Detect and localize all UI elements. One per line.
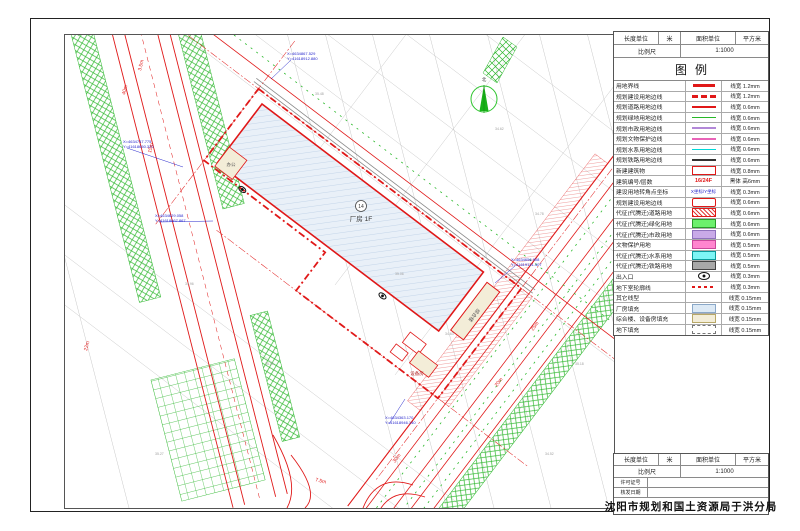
coordinate-y-text: Y=41618667.867 <box>155 218 186 223</box>
legend-row-linewidth: 线宽 0.15mm <box>722 325 768 336</box>
legend-swatch-line-black <box>686 155 722 165</box>
legend-swatch-rect-red-outline <box>686 166 722 176</box>
legend-row: 新建建筑物线宽 0.8mm <box>614 166 768 177</box>
area-unit-label: 面积单位 <box>681 454 736 465</box>
legend-row: 规划绿地用地边线线宽 0.6mm <box>614 113 768 124</box>
issue-date-row: 核发日期 <box>614 488 768 498</box>
legend-swatch-line-cyan <box>686 145 722 155</box>
spot-height: 35.48 <box>315 92 324 96</box>
spot-height: 34.62 <box>495 127 504 131</box>
legend-row-linewidth: 线宽 0.5mm <box>722 240 768 250</box>
legend-row-label: 厂房填充 <box>614 303 686 313</box>
issue-date-label: 核发日期 <box>614 488 648 497</box>
legend-row-linewidth: 线宽 0.3mm <box>722 282 768 292</box>
issue-date-value <box>648 488 768 497</box>
legend-row: 出入口线宽 0.3mm <box>614 272 768 283</box>
green-band-northeast <box>483 37 517 83</box>
legend-row: 规划道路用地边线线宽 0.6mm <box>614 102 768 113</box>
legend-row-label: 文物保护用地 <box>614 240 686 250</box>
building-number: 14 <box>358 204 364 210</box>
legend-swatch-text-red: 16/24F <box>686 176 722 186</box>
legend-row: 其它线型线宽 0.15mm <box>614 293 768 304</box>
legend-row-linewidth: 线宽 0.6mm <box>722 229 768 239</box>
dimension-label: 22m <box>83 341 91 352</box>
legend-row: 文物保护用地线宽 0.5mm <box>614 240 768 251</box>
north-label: 北 <box>482 76 487 83</box>
title-block: 长度单位 米 面积单位 平方米 比例尺 1:1000 许可证号 核发日期 沈阳市… <box>613 453 769 515</box>
legend-row-label: 出入口 <box>614 272 686 282</box>
legend-row-linewidth: 线宽 0.15mm <box>722 314 768 324</box>
coordinate-y-text: Y=41619141.407 <box>511 262 542 267</box>
legend-row-linewidth: 线宽 0.6mm <box>722 145 768 155</box>
legend-row: 厂房填充线宽 0.15mm <box>614 303 768 314</box>
length-unit-label: 长度单位 <box>614 32 659 44</box>
legend-row: 规划建设用地边线线宽 1.2mm <box>614 92 768 103</box>
spot-height: 34.52 <box>545 452 554 456</box>
spot-height: 35.18 <box>575 362 584 366</box>
spot-height: 35.06 <box>395 272 404 276</box>
drawing-sheet: 综合楼 14 厂房 1F 办公 设备房 北 X=4634867.529Y=416… <box>30 18 770 512</box>
dimension-label: 15m <box>147 143 155 154</box>
office-label: 办公 <box>227 161 236 168</box>
spot-height: 34.96 <box>185 282 194 286</box>
coordinate-y-text: Y=41618946.140 <box>385 420 416 425</box>
legend-row-linewidth: 线宽 0.6mm <box>722 155 768 165</box>
legend-row-label: 新建建筑物 <box>614 166 686 176</box>
legend-row-linewidth: 线宽 0.3mm <box>722 272 768 282</box>
legend-row-linewidth: 线宽 0.15mm <box>722 293 768 303</box>
legend-row-linewidth: 线宽 0.3mm <box>722 187 768 197</box>
scale-row: 比例尺 1:1000 <box>614 45 768 58</box>
legend-swatch-line-pink <box>686 134 722 144</box>
legend-row-label: 代征(代腾迁)水系用地 <box>614 251 686 261</box>
legend-swatch-rect-red-outline2 <box>686 198 722 208</box>
legend-row: 规划铁路用地边线线宽 0.6mm <box>614 155 768 166</box>
legend-title: 图例 <box>614 58 768 81</box>
legend-swatch-rect-pink-fill <box>686 240 722 250</box>
legend-row-label: 规划建设用地边线 <box>614 92 686 102</box>
legend-swatch-rect-tan-fill <box>686 314 722 324</box>
legend-row: 代征(代腾迁)铁路用地线宽 0.5mm <box>614 261 768 272</box>
legend-row: 综合楼、设备房填充线宽 0.15mm <box>614 314 768 325</box>
dimension-label: 7.5m <box>315 477 327 486</box>
legend-row-linewidth: 线宽 0.5mm <box>722 261 768 271</box>
legend-swatch-entrance <box>686 272 722 282</box>
spot-height: 34.63 <box>445 332 454 336</box>
scale-label: 比例尺 <box>614 45 681 57</box>
area-unit-label: 面积单位 <box>681 32 736 44</box>
legend-row-label: 地下填充 <box>614 325 686 336</box>
legend-row-linewidth: 线宽 0.5mm <box>722 251 768 261</box>
legend-swatch-rect-green-fill <box>686 219 722 229</box>
coordinate-leader <box>127 148 183 167</box>
legend-row: 代征(代腾迁)水系用地线宽 0.5mm <box>614 251 768 262</box>
spot-height: 34.78 <box>535 212 544 216</box>
legend-row-label: 规划市政用地边线 <box>614 123 686 133</box>
legend-row-linewidth: 线宽 0.6mm <box>722 198 768 208</box>
site-plan-map: 综合楼 14 厂房 1F 办公 设备房 北 X=4634867.529Y=416… <box>64 34 615 509</box>
units-row-bottom: 长度单位 米 面积单位 平方米 <box>614 454 768 466</box>
legend-row-label: 代征(代腾迁)铁路用地 <box>614 261 686 271</box>
dimension-label: 3.5m <box>137 59 146 71</box>
legend-swatch-line-red-thick <box>686 81 722 91</box>
spot-height: 35.27 <box>155 452 164 456</box>
legend-swatch-dash-red-small <box>686 282 722 292</box>
factory-label: 厂房 1F <box>350 214 372 223</box>
legend-row-label: 其它线型 <box>614 293 686 303</box>
legend-row-label: 代征(代腾迁)绿化用地 <box>614 219 686 229</box>
legend-panel: 长度单位 米 面积单位 平方米 比例尺 1:1000 图例 用地界线线宽 1.2… <box>613 31 769 336</box>
legend-row: 代征(代腾迁)绿化用地线宽 0.6mm <box>614 219 768 230</box>
legend-row: 地下填充线宽 0.15mm <box>614 325 768 336</box>
legend-swatch-line-red-dashdot <box>686 92 722 102</box>
legend-row-label: 综合楼、设备房填充 <box>614 314 686 324</box>
area-unit-value: 平方米 <box>736 32 768 44</box>
legend-swatch-line-purple <box>686 123 722 133</box>
legend-swatch-blank <box>686 293 722 303</box>
legend-row-label: 代征(代腾迁)市政用地 <box>614 229 686 239</box>
coordinate-y-text: Y=41618912.880 <box>287 56 318 61</box>
legend-row-linewidth: 线宽 0.15mm <box>722 303 768 313</box>
legend-row-linewidth: 线宽 0.6mm <box>722 134 768 144</box>
legend-row-linewidth: 黑体 高6mm <box>722 176 768 186</box>
legend-row-label: 规划水系用地边线 <box>614 145 686 155</box>
legend-row-linewidth: 线宽 0.6mm <box>722 113 768 123</box>
agency-name: 沈阳市规划和国土资源局于洪分局 <box>614 498 768 514</box>
legend-row-label: 代征(代腾迁)道路用地 <box>614 208 686 218</box>
legend-row-label: 建设用地转角点坐标 <box>614 187 686 197</box>
permit-value <box>648 478 768 487</box>
scale-label: 比例尺 <box>614 466 681 477</box>
legend-swatch-coord-sym: X坐标/Y坐标 <box>686 187 722 197</box>
permit-row: 许可证号 <box>614 478 768 488</box>
length-unit-label: 长度单位 <box>614 454 659 465</box>
legend-swatch-rect-blue-fill <box>686 303 722 313</box>
legend-row: 代征(代腾迁)道路用地线宽 0.6mm <box>614 208 768 219</box>
legend-row-linewidth: 线宽 1.2mm <box>722 92 768 102</box>
scale-value: 1:1000 <box>681 45 768 57</box>
map-canvas: 综合楼 14 厂房 1F 办公 设备房 北 X=4634867.529Y=416… <box>65 35 614 508</box>
legend-row-linewidth: 线宽 0.6mm <box>722 208 768 218</box>
legend-swatch-rect-cyan-fill <box>686 251 722 261</box>
legend-row-label: 规划铁路用地边线 <box>614 155 686 165</box>
dimension-label: 40m <box>121 85 129 96</box>
green-park-grid <box>151 359 265 501</box>
legend-row: 建设用地转角点坐标X坐标/Y坐标线宽 0.3mm <box>614 187 768 198</box>
legend-row-label: 规划建设用地边线 <box>614 198 686 208</box>
legend-swatch-rect-purple-fill <box>686 229 722 239</box>
scale-value: 1:1000 <box>681 466 768 477</box>
legend-row: 规划文物保护边线线宽 0.6mm <box>614 134 768 145</box>
north-arrow: 北 <box>471 76 497 113</box>
legend-row: 建筑编号/层数16/24F黑体 高6mm <box>614 176 768 187</box>
coordinate-leader <box>271 60 291 79</box>
legend-swatch-line-green <box>686 113 722 123</box>
units-row: 长度单位 米 面积单位 平方米 <box>614 32 768 45</box>
area-unit-value: 平方米 <box>736 454 768 465</box>
legend-row-linewidth: 线宽 0.6mm <box>722 219 768 229</box>
legend-row-linewidth: 线宽 1.2mm <box>722 81 768 91</box>
green-belt-east <box>166 35 244 209</box>
legend-row-linewidth: 线宽 0.6mm <box>722 123 768 133</box>
road-west <box>65 35 316 508</box>
legend-row-label: 建筑编号/层数 <box>614 176 686 186</box>
legend-row-label: 规划文物保护边线 <box>614 134 686 144</box>
spot-height: 35.40 <box>265 362 274 366</box>
legend-row: 规划建设用地边线线宽 0.6mm <box>614 198 768 209</box>
legend-swatch-line-red <box>686 102 722 112</box>
legend-row-label: 用地界线 <box>614 81 686 91</box>
legend-row-linewidth: 线宽 0.8mm <box>722 166 768 176</box>
legend-row-label: 规划道路用地边线 <box>614 102 686 112</box>
legend-row: 用地界线线宽 1.2mm <box>614 81 768 92</box>
legend-row: 规划水系用地边线线宽 0.6mm <box>614 145 768 156</box>
permit-label: 许可证号 <box>614 478 648 487</box>
legend-rows: 用地界线线宽 1.2mm规划建设用地边线线宽 1.2mm规划道路用地边线线宽 0… <box>614 81 768 335</box>
scale-row-bottom: 比例尺 1:1000 <box>614 466 768 478</box>
legend-row-label: 规划绿地用地边线 <box>614 113 686 123</box>
legend-row-linewidth: 线宽 0.6mm <box>722 102 768 112</box>
legend-row-label: 地下室轮廓线 <box>614 282 686 292</box>
legend-swatch-rect-white-dash <box>686 325 722 336</box>
length-unit-value: 米 <box>659 32 681 44</box>
length-unit-value: 米 <box>659 454 681 465</box>
legend-swatch-rect-gray-fill <box>686 261 722 271</box>
equipment-label: 设备房 <box>410 370 424 377</box>
legend-row: 代征(代腾迁)市政用地线宽 0.6mm <box>614 229 768 240</box>
legend-row: 规划市政用地边线线宽 0.6mm <box>614 123 768 134</box>
legend-swatch-rect-red-hatch <box>686 208 722 218</box>
dimension-label: 20m <box>494 377 505 388</box>
legend-row: 地下室轮廓线线宽 0.3mm <box>614 282 768 293</box>
